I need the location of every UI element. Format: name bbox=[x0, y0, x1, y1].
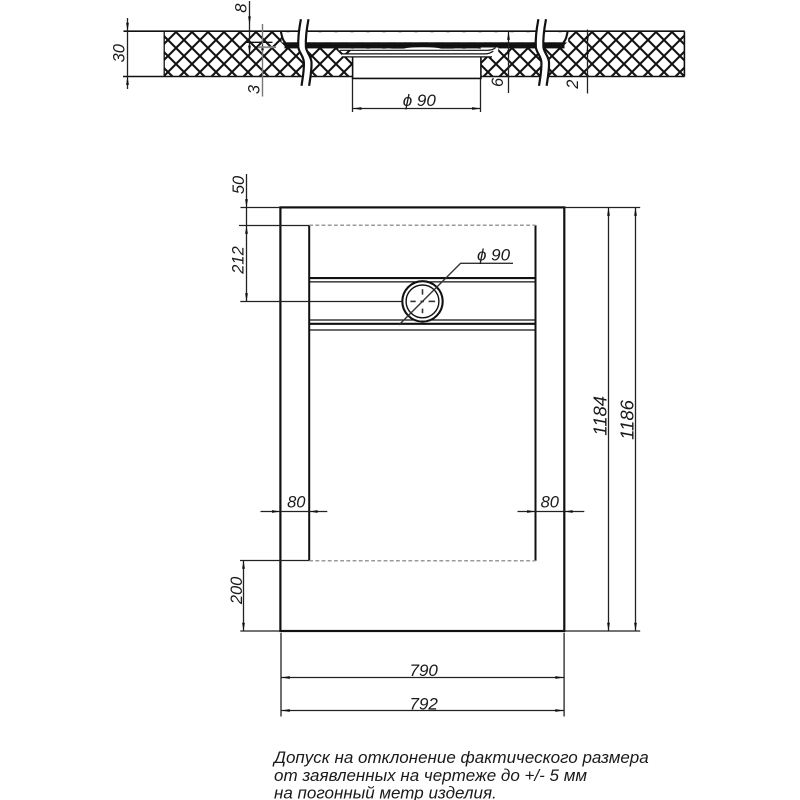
svg-text:200: 200 bbox=[228, 576, 246, 605]
svg-text:212: 212 bbox=[230, 246, 248, 275]
svg-text:792: 792 bbox=[410, 695, 439, 714]
svg-text:ϕ 90: ϕ 90 bbox=[477, 246, 511, 265]
svg-text:50: 50 bbox=[230, 175, 248, 194]
svg-text:80: 80 bbox=[287, 493, 306, 511]
svg-text:1186: 1186 bbox=[617, 399, 638, 439]
svg-text:790: 790 bbox=[410, 661, 439, 680]
svg-text:80: 80 bbox=[541, 493, 560, 511]
svg-text:8: 8 bbox=[232, 3, 250, 13]
svg-text:на погонный метр изделия.: на погонный метр изделия. bbox=[274, 784, 497, 800]
svg-text:3: 3 bbox=[245, 84, 263, 94]
svg-text:6: 6 bbox=[489, 77, 507, 87]
svg-text:2: 2 bbox=[564, 80, 582, 90]
svg-text:30: 30 bbox=[110, 43, 128, 62]
svg-text:ϕ 90: ϕ 90 bbox=[403, 91, 437, 110]
svg-text:от заявленных на чертеже до +/: от заявленных на чертеже до +/- 5 мм bbox=[274, 766, 587, 785]
svg-text:Допуск на отклонение фактическ: Допуск на отклонение фактического размер… bbox=[272, 748, 649, 767]
svg-text:1184: 1184 bbox=[590, 396, 611, 436]
